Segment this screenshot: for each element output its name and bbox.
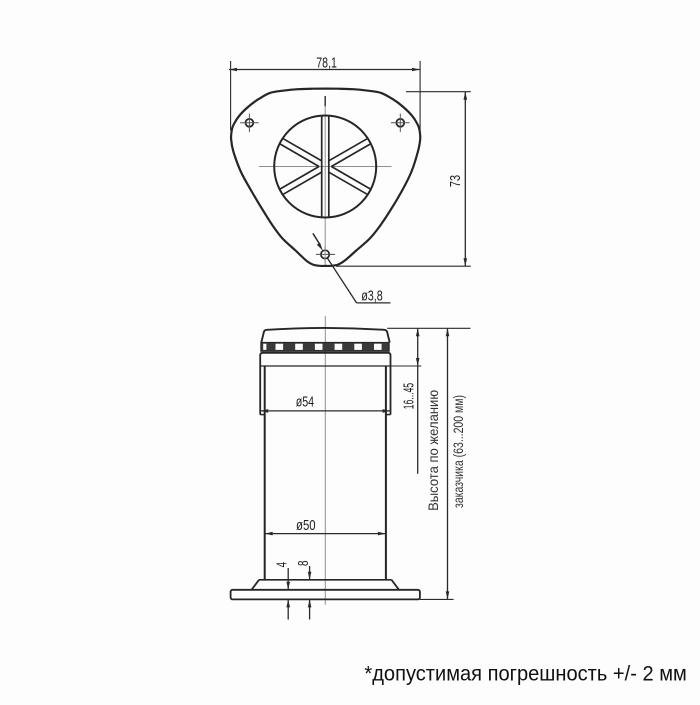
svg-text:73: 73	[447, 175, 464, 187]
svg-text:Высота по желанию: Высота по желанию	[425, 390, 441, 511]
svg-text:*допустимая погрешность +/- 2: *допустимая погрешность +/- 2 мм	[364, 663, 686, 686]
svg-text:8: 8	[295, 561, 312, 567]
svg-text:ø54: ø54	[296, 393, 314, 410]
svg-text:16...45: 16...45	[400, 383, 417, 409]
svg-text:ø50: ø50	[296, 517, 316, 534]
svg-text:4: 4	[273, 562, 290, 567]
svg-text:ø3,8: ø3,8	[361, 288, 383, 305]
svg-text:заказчика (63...200 мм): заказчика (63...200 мм)	[450, 395, 466, 508]
svg-text:78,1: 78,1	[316, 54, 337, 71]
